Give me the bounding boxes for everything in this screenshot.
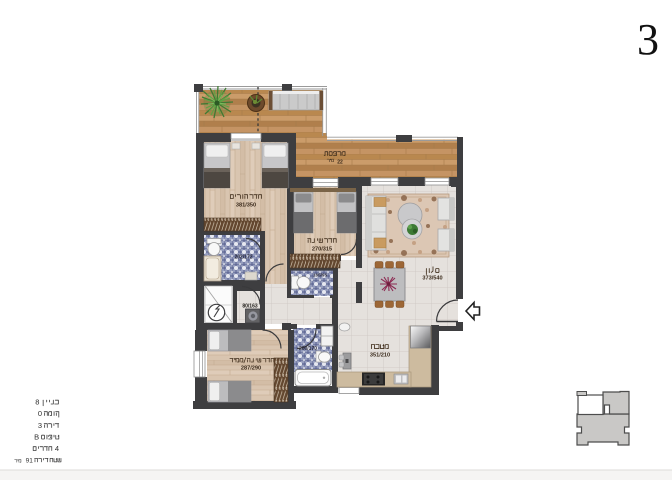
svg-text:22: 22 — [337, 159, 343, 165]
svg-text:3: 3 — [637, 15, 659, 64]
svg-text:270/315: 270/315 — [312, 247, 332, 253]
svg-text:202/172: 202/172 — [234, 255, 252, 261]
svg-text:B: B — [34, 433, 39, 442]
svg-text:200/170: 200/170 — [299, 346, 317, 352]
svg-text:381/350: 381/350 — [236, 203, 256, 209]
svg-text:351/210: 351/210 — [370, 353, 390, 359]
svg-text:8: 8 — [35, 398, 39, 407]
svg-text:165/95: 165/95 — [313, 273, 327, 278]
svg-text:0: 0 — [38, 409, 42, 418]
svg-text:91: 91 — [26, 457, 34, 464]
svg-text:4: 4 — [55, 444, 59, 453]
svg-text:80/163: 80/163 — [242, 304, 258, 310]
svg-text:287/290: 287/290 — [241, 366, 261, 372]
svg-text:3: 3 — [38, 421, 42, 430]
svg-text:373/540: 373/540 — [422, 276, 442, 282]
